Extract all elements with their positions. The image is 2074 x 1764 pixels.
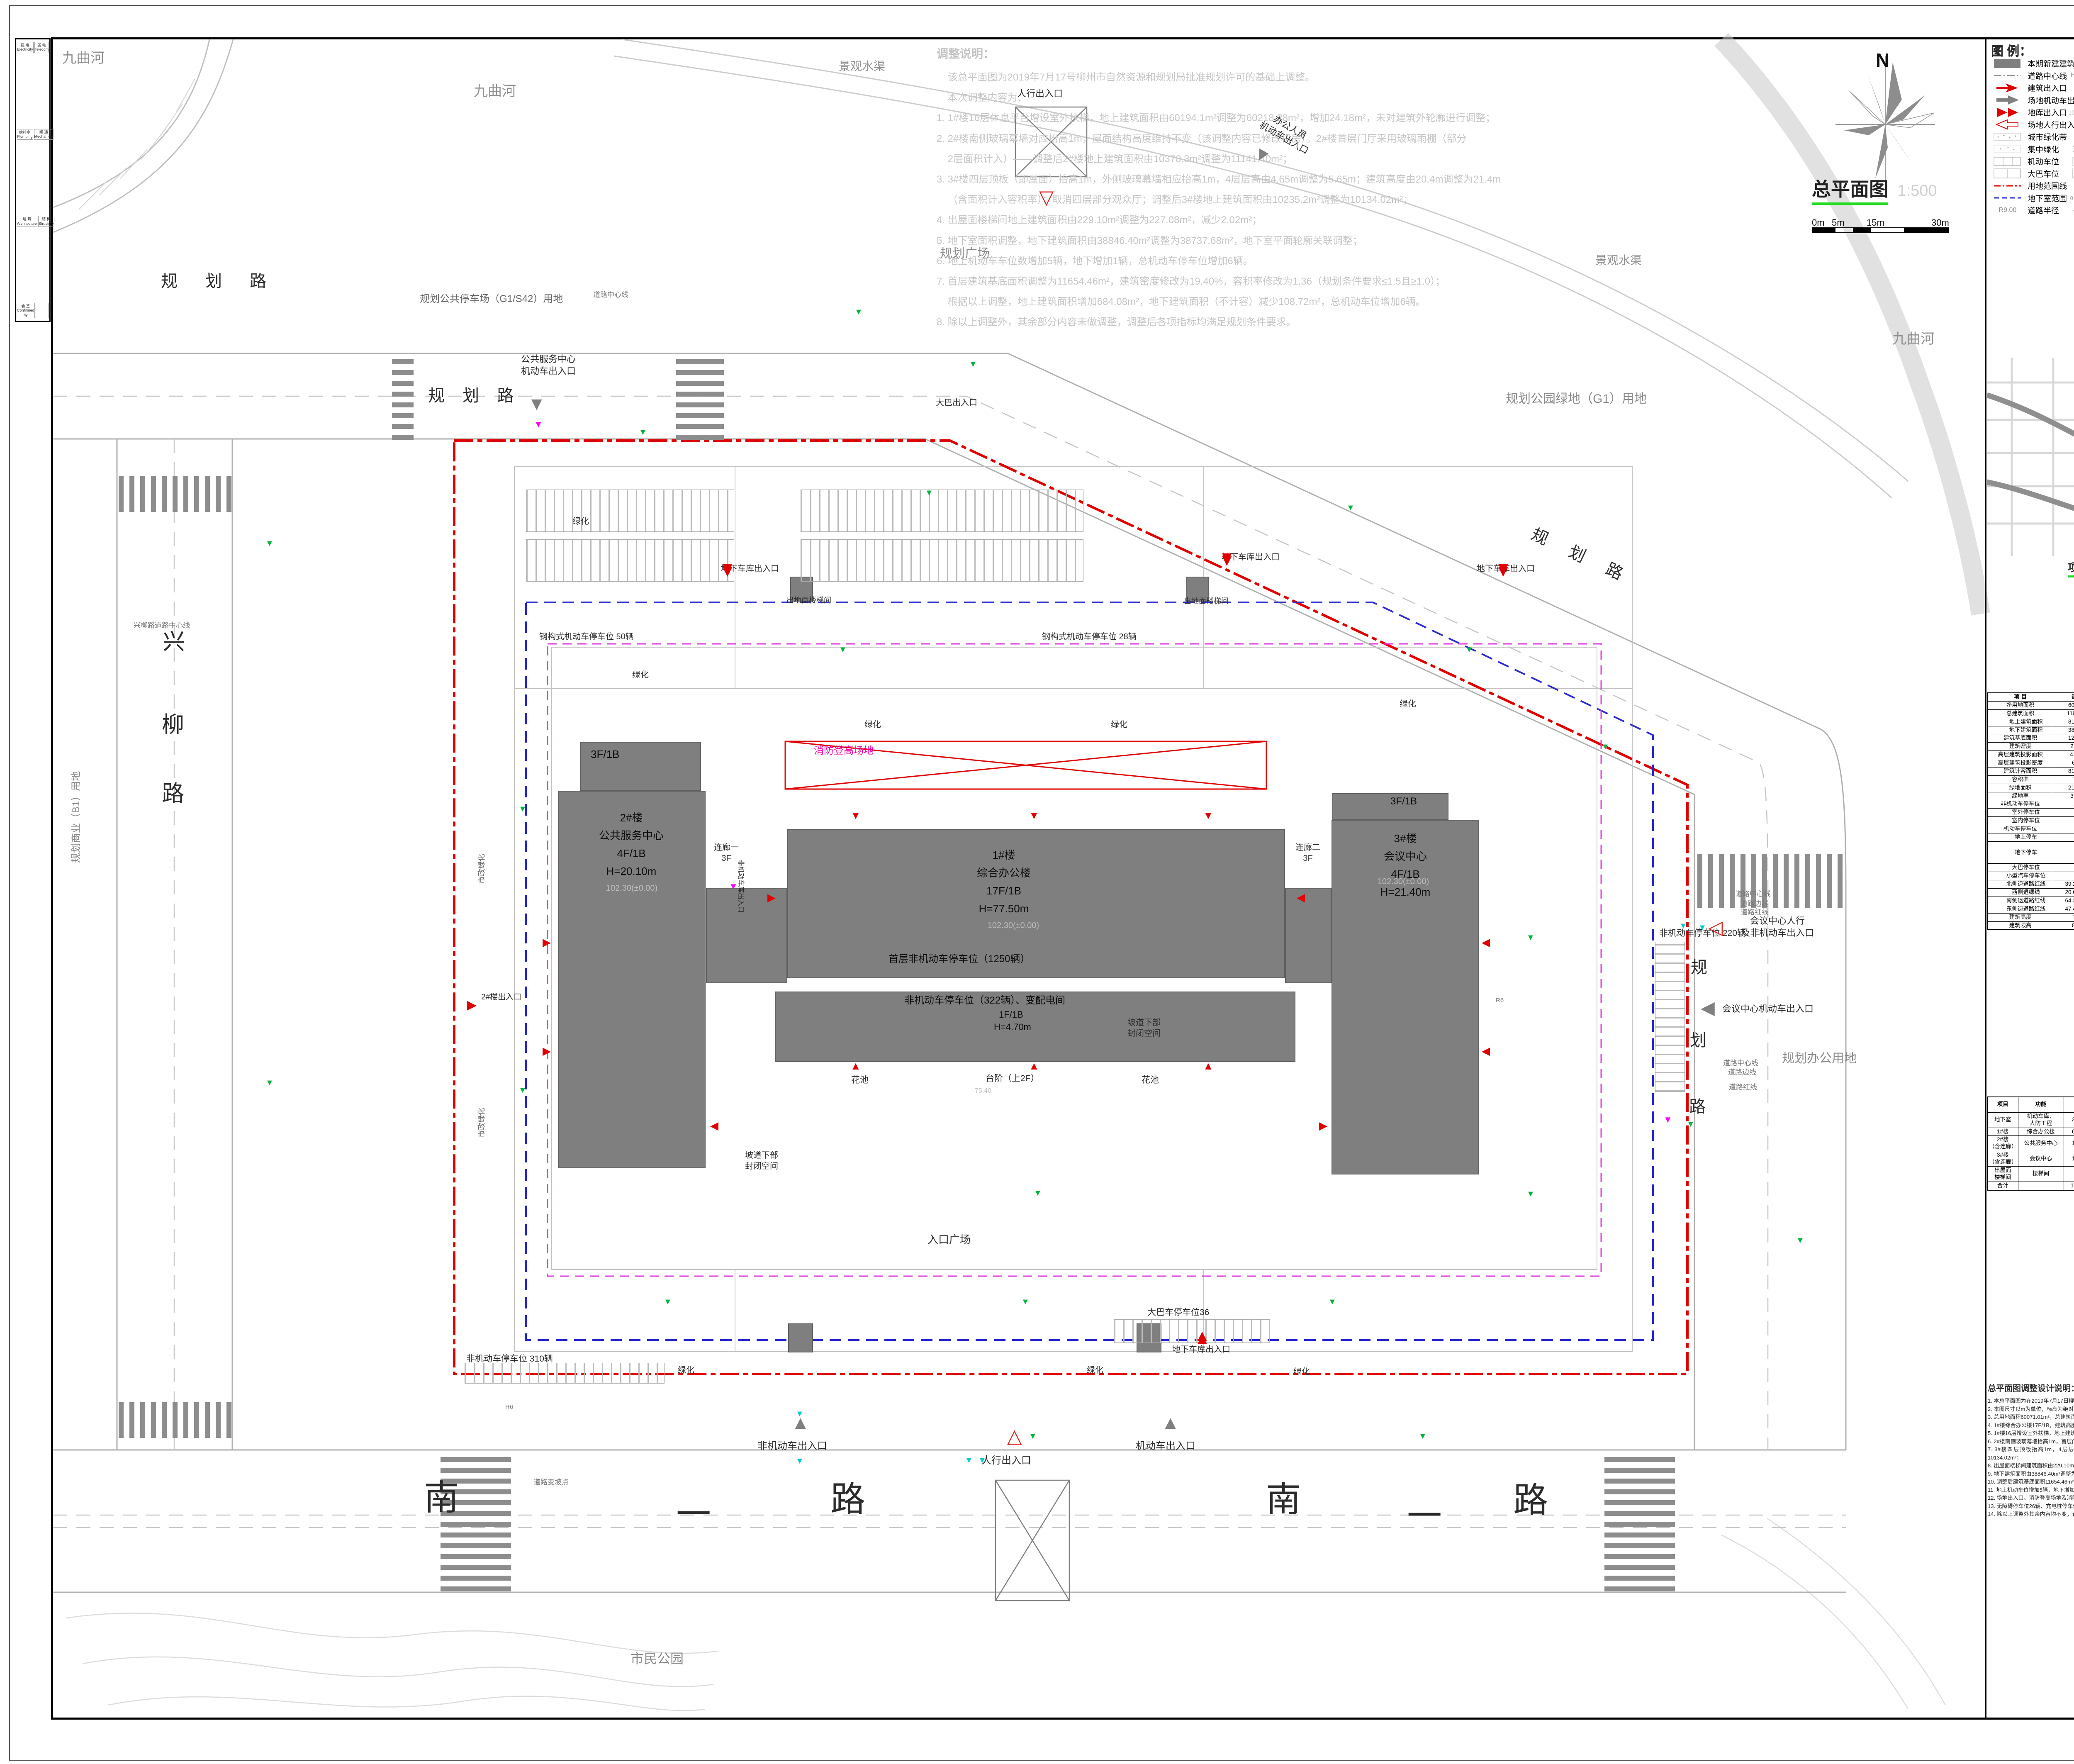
north-label: N [1876, 49, 1889, 71]
legend-item-label: 道路中心线 [2028, 70, 2067, 81]
scalebar-tick: 15m [1867, 217, 1884, 228]
scalebar-tick: 30m [1931, 217, 1949, 228]
legend-right-item: H=73.20m建筑高度（室外地坪至屋面完成面） [2067, 70, 2074, 82]
design-note-item: 7. 3#楼四层顶板抬高1m，4层层高由4.65m调整为5.65m，建筑高度由2… [1988, 1445, 2074, 1462]
legend-item-label: 集中绿化 [2028, 144, 2059, 155]
drawing-sheet: 强 电Electricity弱 电Telecom给排水Plumbing暖 通Me… [0, 0, 2074, 1764]
legend-swatch-outline-arrow [1988, 118, 2028, 131]
design-note-item: 1. 本总平面图为在2019年7月17日柳州市自然资源和规划局批准的规划许可基础… [1988, 1397, 2074, 1405]
indicator-row: 大巴停车位660辆每车位按2辆标准车位计入总车位 [1987, 864, 2074, 872]
legend-swatch-green-triangle: 101.70 ▼ [2067, 120, 2074, 129]
legend-right-item: 102.30(±0.00)建筑物首层室内地坪标高 [2067, 106, 2074, 119]
indicator-row: 地下停车113011311辆含充电桩停车位144辆，占比11.75%；无障碍停车… [1987, 841, 2074, 864]
indicators-section: 主要技术经济指标 项 目调整前调整后差额单位备 注净用地面积60071.0160… [1987, 679, 2074, 930]
indicator-row: 绿地率35.00%35.00%0.00——≥35% [1987, 792, 2074, 800]
building-1-podium [775, 992, 1295, 1062]
signoff-cell: 建 筑Architecture [17, 216, 37, 227]
building-area-row: 3#楼 （含连廊）会议中心10235.20m²10134.02m²-101.18… [1987, 1151, 2074, 1167]
design-note-item: 2. 本图尺寸以m为单位，标高为绝对标高； [1988, 1405, 2074, 1413]
legend-right-item: 消防登高场地 [2067, 131, 2074, 143]
crosswalk [119, 1402, 231, 1438]
signoff-cell: 结 构Structure [38, 216, 54, 227]
bus-parking-strip [1114, 1319, 1270, 1343]
building-2-public-service-center [558, 791, 706, 1168]
legend-right-item: 闸机位置示意 [2067, 204, 2074, 217]
indicator-row: 地下建筑面积38846.4038737.68-108.72m² [1987, 726, 2074, 734]
scalebar-tick: 0m [1812, 217, 1825, 228]
legend-left-item: 用地范围线 [1988, 180, 2067, 192]
indicator-row: 西侧退绿线20.64/72.4920.64/72.490.00m多层15/高层2… [1987, 889, 2074, 897]
location-map-title: 项目位置示意图 [2068, 559, 2074, 575]
legend-right-item: 活动路障 [2067, 180, 2074, 192]
buildings-table-title: 单体建筑面积明细表 [1987, 1084, 2074, 1096]
signoff-cell: 给排水Plumbing [17, 129, 33, 140]
parking-strip [526, 539, 734, 582]
indicator-row: 高层建筑投影密度6.85%6.85%0.00——≤18% [1987, 759, 2074, 767]
crosswalk [676, 358, 724, 440]
legend-left-item: 地库出入口 [1988, 106, 2067, 119]
design-note-item: 3. 总用地面积60071.01m²，总建筑面积120458.46m²，其中地上… [1988, 1413, 2074, 1421]
legend-item-label: 地库出入口 [2028, 107, 2067, 118]
parking-strip [801, 539, 1083, 582]
indicator-row: 南侧退道路红线64.25/91.9164.25/91.910.00m多层15/高… [1987, 897, 2074, 905]
legend-left-item: 本期新建建筑 [1988, 57, 2074, 70]
legend-swatch-coord [2067, 94, 2074, 106]
indicator-row: 建筑高度77.5077.500.00m≤80m [1987, 913, 2074, 921]
legend-swatch-text: 16F/1B [2067, 84, 2074, 92]
building-2-podium [580, 742, 701, 791]
adjustment-notes-title: 调整说明： [937, 45, 1799, 61]
design-notes-title: 总平面图调整设计说明： [1988, 1381, 2074, 1394]
legend-left-item: 大巴车位 [1988, 168, 2059, 180]
legend-swatch-text: H=73.20m [2067, 72, 2074, 79]
design-note-item: 8. 出屋面楼梯间建筑面积由229.10m²调整为227.08m²，减少2.02… [1988, 1462, 2074, 1470]
building-3-conference-center [1332, 820, 1479, 1174]
indicator-row: 建筑密度21.26%19.40%-1.86%——≤22%且≥15% [1987, 743, 2074, 751]
design-notes: 总平面图调整设计说明： 1. 本总平面图为在2019年7月17日柳州市自然资源和… [1988, 1381, 2074, 1518]
design-note-item: 13. 无障碍停车位26辆、充电桩停车位144辆均设于地下车库； [1988, 1502, 2074, 1511]
indicator-row: 绿地面积21024.8521024.850.00m² [1987, 784, 2074, 792]
legend-left-item: 集中绿化 [1988, 143, 2059, 156]
indicator-row: 北侧退道路红线39.24/90.5739.24/90.570.00m多层9/高层… [1987, 880, 2074, 889]
bike-parking-strip [465, 1363, 665, 1384]
stair-exit-3 [788, 1323, 813, 1352]
legend-left-item: 建筑出入口 [1988, 82, 2067, 94]
indicator-row: 东侧退道路红线47.43/99.2847.43/99.280.00m多层9/高层… [1987, 905, 2074, 913]
indicator-row: 小型汽车停车位120812146辆 [1987, 872, 2074, 880]
parking-strip [526, 490, 734, 532]
building-area-row: 1#楼综合办公楼60194.10m²60218.28m²24.18m²6314.… [1987, 1128, 2074, 1136]
crosswalk [1604, 1453, 1675, 1591]
buildings-table-section: 单体建筑面积明细表 项目功能调整前 建筑面积调整后 建筑面积差额调整前 占地面积… [1987, 1084, 2074, 1191]
legend-item-label: 城市绿化带 [2028, 131, 2067, 142]
corridor-2 [1285, 888, 1332, 983]
adjustment-notes: 调整说明： 该总平面图为2019年7月17号柳州市自然资源和规划局批准规划许可的… [937, 45, 1799, 332]
crosswalk [1697, 854, 1845, 908]
legend-swatch-red-dashdot [1988, 180, 2028, 192]
location-map: 柳江大道 基址 南一路 [1987, 358, 2074, 556]
scale-bar: 0m5m15m30m [1812, 217, 1949, 233]
parking-strip [801, 490, 1083, 532]
indicator-row: 地上停车90955辆占比：7.75% [1987, 833, 2074, 841]
legend-right-item: 16F/1B建筑地上/地下层数 [2067, 82, 2074, 94]
scalebar-tick: 5m [1832, 217, 1845, 228]
legend-title: 图 例： [1991, 41, 2032, 59]
sidebar-divider [1985, 37, 1986, 1720]
legend-swatch-building [1988, 57, 2028, 70]
legend-swatch-barrier [2067, 180, 2074, 192]
design-note-item: 5. 1#楼16层增设室外扶梯，地上建筑面积由60194.10m²调整为6021… [1988, 1429, 2074, 1438]
legend-swatch-road [2067, 57, 2074, 70]
bike-parking-strip [1655, 942, 1685, 1092]
indicator-row: 建筑限高80/-1580/-15m地上/地下 [1987, 921, 2074, 930]
legend-item-label: 大巴车位 [2028, 168, 2059, 179]
signoff-cell [36, 303, 49, 318]
legend-item-label: 机动车位 [2028, 156, 2059, 167]
legend-left-item: 场地人行出入口 [1988, 119, 2074, 131]
design-note-item: 6. 2#楼南侧玻璃幕墙抬高1m，首层门厅增设玻璃雨棚，地上建筑面积由10378… [1988, 1438, 2074, 1446]
north-compass [1835, 56, 1935, 193]
legend-left-item: R9.00道路半径 [1988, 204, 2059, 217]
legend-left-item: 场地机动车出入口 [1988, 94, 2074, 107]
legend-swatch-radius: R9.00 [1988, 207, 2028, 214]
stair-exit-2 [1186, 577, 1209, 602]
signoff-cell: 暖 通Mechanical [34, 129, 54, 140]
legend-right-item: 消防车道范围（4米宽） [2067, 143, 2074, 156]
legend-item-label: 道路半径 [2028, 205, 2059, 216]
legend-swatch-green-patch [1988, 143, 2028, 155]
legend-swatch-text-light: 102.30(±0.00) [2067, 109, 2074, 116]
legend-swatch-parking [1988, 155, 2028, 168]
drawing-title: 总平面图 [1812, 178, 1888, 205]
drawing-title-block: 总平面图 1:500 0m5m15m30m [1812, 174, 1986, 233]
signoff-cell: 会 签Confirmed by [17, 303, 35, 318]
legend-left-item: 城市绿化带 [1988, 131, 2067, 143]
signoff-strip: 强 电Electricity弱 电Telecom给排水Plumbing暖 通Me… [15, 38, 51, 322]
indicator-row: 地上建筑面积81036.7081720.78684.08m² [1987, 718, 2074, 726]
legend-left-item: 机动车位 [1988, 155, 2059, 168]
legend-swatch-fire-box [2067, 131, 2074, 143]
design-note-item: 14. 除以上调整外其余内容均不变，调整后各项指标满足规划条件要求。 [1988, 1510, 2074, 1518]
legend-item-label: 建筑出入口 [2028, 82, 2067, 93]
signoff-band: 会 签Confirmed by [16, 303, 49, 318]
design-note-item: 9. 地下建筑面积由38846.40m²调整为38737.68m²，减少108.… [1988, 1470, 2074, 1478]
legend-swatch-double-red-arrow [1988, 106, 2028, 119]
design-note-item: 11. 地上机动车位增加5辆，地下增加1辆，总机动车停车位1226辆；非机动车停… [1988, 1486, 2074, 1494]
legend-left-item: 道路中心线 [1988, 70, 2067, 82]
building-area-row: 出屋面 楼梯间楼梯间229.10m²227.08m²-2.02m²229.10m… [1987, 1166, 2074, 1182]
signoff-band: 强 电Electricity弱 电Telecom [16, 42, 49, 53]
indicator-row: 总建筑面积119883.10120458.46575.36m² [1987, 709, 2074, 718]
signoff-band: 给排水Plumbing暖 通Mechanical [16, 129, 49, 140]
drawing-scale: 1:500 [1897, 182, 1937, 200]
legend-swatch-gate [2067, 204, 2074, 217]
indicators-table: 项 目调整前调整后差额单位备 注净用地面积60071.0160071.010.0… [1987, 692, 2074, 930]
indicator-row: 室外停车位5305300辆地下未设非机动车停车位 [1987, 809, 2074, 817]
legend-swatch-bike [2067, 155, 2074, 168]
indicator-row: 高层建筑投影面积4116.524116.520.00m² [1987, 751, 2074, 759]
legend-right-item: 硬质铺地 [2067, 168, 2074, 180]
legend-right-item: 非机动车位 [2067, 155, 2074, 168]
indicator-row: 室内停车位157215720辆 [1987, 817, 2074, 825]
indicator-row: 建筑计容面积81036.7081720.78684.08m² [1987, 767, 2074, 775]
signoff-cell: 强 电Electricity [17, 42, 34, 53]
design-note-item: 10. 调整后建筑基底面积11654.46m²，建筑密度19.40%，容积率1.… [1988, 1478, 2074, 1486]
crosswalk [119, 476, 231, 512]
signoff-cell: 弱 电Telecom [34, 42, 49, 53]
legend-right-item: 内部道路 [2067, 57, 2074, 70]
legend-swatch-paving [2067, 167, 2074, 180]
legend-right-item: 建筑轴线交点/红线转折点坐标 [2067, 94, 2074, 107]
corridor-1 [706, 888, 787, 983]
legend-swatch-slope: 0.3% 31.06 → [2067, 195, 2074, 201]
legend-item-label: 地下室范围 [2028, 192, 2067, 204]
indicators-title: 主要技术经济指标 [1987, 679, 2074, 692]
indicator-row: 净用地面积60071.0160071.010.00m²合90.11亩 [1987, 701, 2074, 709]
building-area-row: 合计119883.10m²120458.46m²575.36m²12770.60… [1987, 1182, 2074, 1190]
legend-right-item: 0.3% 31.06 →路段长度及找坡 [2067, 192, 2074, 205]
legend-item-label: 用地范围线 [2028, 180, 2067, 191]
legend-swatch-green-band [1988, 131, 2028, 143]
design-note-item: 12. 场地出入口、消防登高场地及消防车道位置不变，消防车道宽4m； [1988, 1494, 2074, 1502]
legend-swatch-gray-arrow [1988, 94, 2028, 106]
indicator-row: 建筑基底面积12770.6011654.46-1116.14m² [1987, 734, 2074, 743]
indicator-row: 非机动车停车位210221020辆≥2.0辆/100m² [1987, 800, 2074, 809]
legend-swatch-blue-dash [1988, 192, 2028, 204]
building-1-office-tower [787, 829, 1285, 978]
design-note-item: 4. 1#楼综合办公楼17F/1B，建筑高度77.50m；2#楼公共服务中心4F… [1988, 1421, 2074, 1430]
building-area-row: 地下室机动车库、 人防工程38846.40m²38737.68m²-108.72… [1987, 1112, 2074, 1128]
fire-access-area [785, 741, 1266, 789]
legend-swatch-bus-parking [1988, 167, 2028, 180]
legend-swatch-centerline [1988, 69, 2028, 82]
indicator-row: 机动车停车位122012266辆≥1.5辆/100m² [1987, 825, 2074, 833]
legend-right-item: 101.70 ▼室外地面绝对标高 [2067, 119, 2074, 131]
crosswalk [392, 358, 414, 440]
crosswalk [441, 1453, 511, 1591]
building-area-row: 2#楼 （含连廊）公共服务中心10378.30m²11141.40m²763.1… [1987, 1136, 2074, 1151]
signoff-band: 建 筑Architecture结 构Structure [16, 216, 49, 227]
legend-swatch-red-arrow [1988, 82, 2028, 94]
building-3-podium [1332, 793, 1448, 820]
indicator-row: 容积率1.3491.3600.011——≤1.5且≥1.0 [1987, 775, 2074, 784]
legend-swatch-firelane [2067, 143, 2074, 155]
legend-left-item: 地下室范围 [1988, 192, 2067, 205]
buildings-detail-table: 项目功能调整前 建筑面积调整后 建筑面积差额调整前 占地面积调整后 占地面积差额… [1987, 1096, 2074, 1191]
